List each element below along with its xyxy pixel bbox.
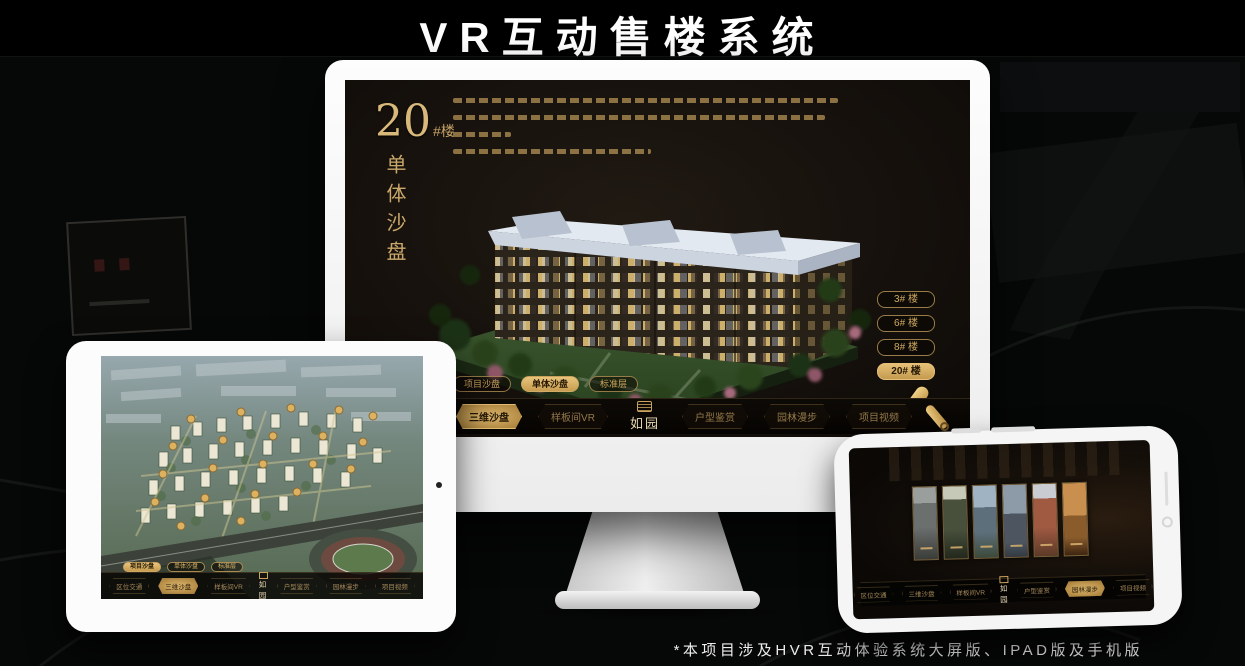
seal-icon <box>259 572 268 579</box>
tablet-tab-single-sandtable[interactable]: 单体沙盘 <box>167 562 205 572</box>
tablet-navbar: 区位交通 三维沙盘 样板间VR 如园 户型鉴赏 园林漫步 项目视频 <box>101 572 423 599</box>
phone-power-button <box>991 426 1035 432</box>
floor-button-6[interactable]: 6# 楼 <box>877 315 935 332</box>
brand-logo: 如园 <box>630 401 660 432</box>
floor-button-8[interactable]: 8# 楼 <box>877 339 935 356</box>
scroll-collapse-icon[interactable] <box>924 403 949 430</box>
tablet-sub-tabs: 项目沙盘 单体沙盘 标准层 <box>123 562 243 572</box>
tablet-nav-location-traffic[interactable]: 区位交通 <box>109 578 149 594</box>
phone-camera-ring <box>1162 516 1173 527</box>
pergola-beams <box>889 441 1120 481</box>
tablet-nav-unit-plans[interactable]: 户型鉴赏 <box>277 578 317 594</box>
phone-nav-project-video[interactable]: 项目视频 <box>1113 578 1153 595</box>
brand-logo-text: 如园 <box>630 413 660 432</box>
floor-button-group: 3# 楼 6# 楼 8# 楼 20# 楼 <box>877 291 935 380</box>
floor-button-3[interactable]: 3# 楼 <box>877 291 935 308</box>
phone-nav-showroom-vr[interactable]: 样板间VR <box>949 583 992 600</box>
phone-logo-text: 如园 <box>1000 583 1010 605</box>
nav-item-project-video[interactable]: 项目视频 <box>846 404 912 429</box>
sub-tab-group: 项目沙盘 单体沙盘 标准层 <box>453 376 638 392</box>
description-line <box>453 115 825 120</box>
scroll-left-icon[interactable] <box>101 578 102 594</box>
nav-item-garden-walk[interactable]: 园林漫步 <box>764 404 830 429</box>
tablet-nav-3d-sandtable[interactable]: 三维沙盘 <box>158 578 198 594</box>
gallery-panel-6[interactable] <box>1062 482 1089 557</box>
footnote-text: *本项目涉及HVR互动体验系统大屏版、IPAD版及手机版 <box>674 639 1143 660</box>
tablet-nav-project-video[interactable]: 项目视频 <box>375 578 415 594</box>
tablet-tab-project-sandtable[interactable]: 项目沙盘 <box>123 562 161 572</box>
tablet-screen: 项目沙盘 单体沙盘 标准层 区位交通 三维沙盘 样板间VR 如园 户型鉴赏 园林… <box>101 356 423 599</box>
gallery-panel-3[interactable] <box>972 484 999 559</box>
gallery-panels <box>912 482 1089 561</box>
tab-project-sandtable[interactable]: 项目沙盘 <box>453 376 511 392</box>
phone-nav-garden-walk[interactable]: 园林漫步 <box>1065 580 1105 597</box>
nav-item-unit-plans[interactable]: 户型鉴赏 <box>682 404 748 429</box>
phone-nav-3d-sandtable[interactable]: 三维沙盘 <box>901 584 941 601</box>
description-line <box>453 98 838 103</box>
tablet-brand-logo: 如园 <box>259 572 268 600</box>
monitor-stand-base <box>555 591 760 609</box>
tablet-nav-wrap: 项目沙盘 单体沙盘 标准层 区位交通 三维沙盘 样板间VR 如园 户型鉴赏 园林… <box>101 572 423 599</box>
tab-standard-floor[interactable]: 标准层 <box>589 376 638 392</box>
phone-nav-unit-plans[interactable]: 户型鉴赏 <box>1017 581 1057 598</box>
floor-button-20[interactable]: 20# 楼 <box>877 363 935 380</box>
phone-volume-button <box>951 428 981 434</box>
tab-single-sandtable[interactable]: 单体沙盘 <box>521 376 579 392</box>
tablet-tab-standard-floor[interactable]: 标准层 <box>211 562 243 572</box>
phone-device: 区位交通 三维沙盘 样板间VR 如园 户型鉴赏 园林漫步 项目视频 <box>833 425 1182 634</box>
phone-brand-logo: 如园 <box>1000 576 1010 605</box>
tablet-logo-text: 如园 <box>259 579 268 600</box>
page-title: VR互动售楼系统 <box>0 4 1245 65</box>
gallery-panel-2[interactable] <box>942 485 969 560</box>
monitor-stand <box>560 512 750 594</box>
phone-screen: 区位交通 三维沙盘 样板间VR 如园 户型鉴赏 园林漫步 项目视频 <box>849 440 1155 619</box>
seal-icon <box>637 401 652 412</box>
tablet-device: 项目沙盘 单体沙盘 标准层 区位交通 三维沙盘 样板间VR 如园 户型鉴赏 园林… <box>66 341 456 632</box>
tablet-camera-dot <box>436 482 442 488</box>
gallery-panel-5[interactable] <box>1032 483 1059 558</box>
gallery-panel-4[interactable] <box>1002 483 1029 558</box>
phone-navbar: 区位交通 三维沙盘 样板间VR 如园 户型鉴赏 园林漫步 项目视频 <box>860 574 1146 606</box>
gallery-panel-1[interactable] <box>912 486 939 561</box>
nav-item-showroom-vr[interactable]: 样板间VR <box>538 404 608 429</box>
phone-antenna-slot <box>1164 472 1168 506</box>
nav-item-3d-sandtable[interactable]: 三维沙盘 <box>456 404 522 429</box>
tablet-nav-showroom-vr[interactable]: 样板间VR <box>207 578 250 594</box>
scroll-right-icon[interactable] <box>422 578 423 594</box>
tablet-nav-garden-walk[interactable]: 园林漫步 <box>326 578 366 594</box>
phone-nav-location-traffic[interactable]: 区位交通 <box>853 586 893 603</box>
